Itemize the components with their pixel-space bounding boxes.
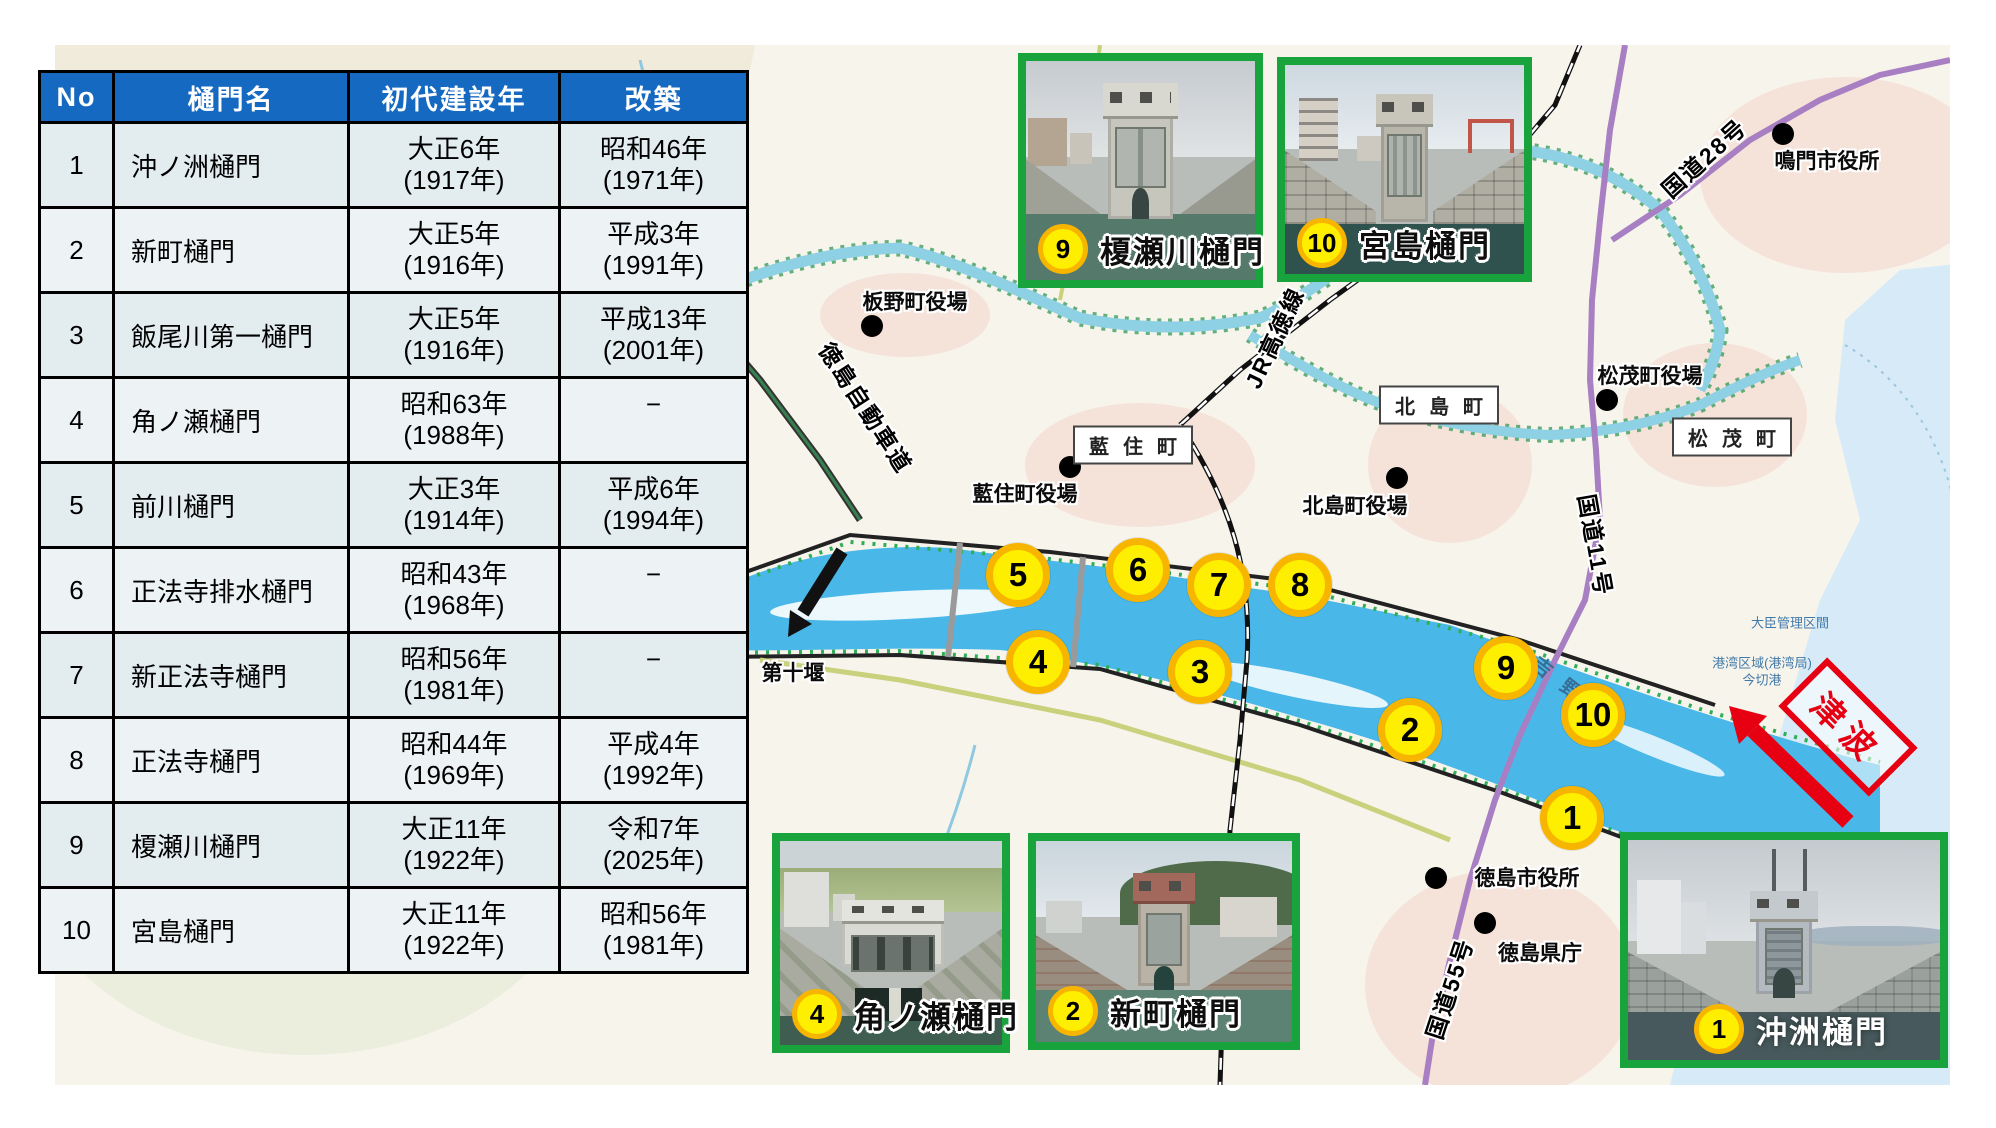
table-row: 4角ノ瀬樋門昭和63年(1988年)− [40,378,748,463]
rebuilt-era-line: − [561,644,746,675]
town-boxed-label: 北島町 [1379,386,1499,425]
photo-part-arch [1132,188,1148,219]
cell-rebuilt-year: 平成4年(1992年) [560,718,748,803]
rebuilt-era-line: 平成3年 [561,219,746,250]
map-marker-10: 10 [1561,683,1625,747]
town-boxed-label: 松茂町 [1672,418,1792,457]
rebuilt-year-line: (2001年) [561,335,746,366]
photo-part-gate [851,935,935,972]
inset-number-badge: 9 [1038,224,1088,274]
rebuilt-year-line [561,420,746,451]
inset-caption: 1沖洲樋門 [1694,1004,1888,1054]
map-marker-3: 3 [1168,640,1232,704]
photo-part-gate [1146,913,1182,965]
built-year-line: (1922年) [350,930,558,961]
cell-built-year: 昭和43年(1968年) [349,548,560,633]
photo-part-b2 [1070,133,1093,164]
photo-part-b1 [1046,901,1082,933]
cell-no: 2 [40,208,114,293]
rebuilt-era-line: 昭和56年 [561,899,746,930]
built-year-line: (1981年) [350,675,558,706]
built-year-line: (1922年) [350,845,558,876]
cell-built-year: 昭和63年(1988年) [349,378,560,463]
cell-no: 1 [40,123,114,208]
cell-built-year: 大正11年(1922年) [349,803,560,888]
cell-built-year: 大正3年(1914年) [349,463,560,548]
gate-table-body: 1沖ノ洲樋門大正6年(1917年)昭和46年(1971年)2新町樋門大正5年(1… [40,123,748,973]
inset-number-badge: 1 [1694,1004,1744,1054]
sea-small-label: 大臣管理区間 [1751,613,1829,632]
built-era-line: 昭和44年 [350,729,558,760]
place-dot [1386,467,1408,489]
map-marker-8: 8 [1268,553,1332,617]
place-label: 板野町役場 [863,286,968,316]
cell-built-year: 大正6年(1917年) [349,123,560,208]
cell-gate-name: 正法寺排水樋門 [114,548,349,633]
inset-caption-text: 角ノ瀬樋門 [854,992,1019,1037]
inset-number-badge: 4 [792,989,842,1039]
map-marker-9: 9 [1474,636,1538,700]
map-marker-2: 2 [1378,698,1442,762]
photo-part-b2 [1681,902,1706,955]
inset-caption-text: 沖洲樋門 [1756,1007,1888,1052]
inset-number-badge: 2 [1048,986,1098,1036]
col-header-gate-name: 樋門名 [114,72,349,123]
cell-rebuilt-year: 平成13年(2001年) [560,293,748,378]
cell-built-year: 昭和44年(1969年) [349,718,560,803]
place-label: 鳴門市役所 [1775,145,1880,175]
photo-part-gate [1387,134,1423,197]
place-dot [1474,912,1496,934]
sea-small-label: 今切港 [1742,670,1781,689]
map-marker-1: 1 [1540,786,1604,850]
built-era-line: 大正6年 [350,134,558,165]
table-header-row: No 樋門名 初代建設年 改築 [40,72,748,123]
inset-caption: 2新町樋門 [1048,986,1242,1036]
photo-part-b1 [784,872,828,927]
map-marker-4: 4 [1006,630,1070,694]
cell-gate-name: 沖ノ洲樋門 [114,123,349,208]
rebuilt-era-line: 平成4年 [561,729,746,760]
photo-part-b1 [1028,118,1067,166]
photo-inset-2: 2新町樋門 [1028,833,1300,1050]
rebuilt-era-line: 令和7年 [561,814,746,845]
cell-gate-name: 新正法寺樋門 [114,633,349,718]
place-dot [861,315,883,337]
table-row: 10宮島樋門大正11年(1922年)昭和56年(1981年) [40,888,748,973]
photo-part-gate [1115,127,1165,188]
place-label: 第十堰 [762,657,825,687]
inset-number-badge: 10 [1297,218,1347,268]
photo-part-cabin [1103,83,1179,119]
cell-gate-name: 榎瀬川樋門 [114,803,349,888]
rebuilt-year-line: (2025年) [561,845,746,876]
table-row: 7新正法寺樋門昭和56年(1981年)− [40,633,748,718]
built-year-line: (1988年) [350,420,558,451]
rebuilt-year-line: (1991年) [561,250,746,281]
place-label: 北島町役場 [1303,490,1408,520]
photo-inset-10: 10宮島樋門 [1277,57,1532,282]
rebuilt-year-line [561,590,746,621]
rebuilt-year-line: (1994年) [561,505,746,536]
built-year-line: (1916年) [350,335,558,366]
place-dot [1425,867,1447,889]
cell-rebuilt-year: 昭和46年(1971年) [560,123,748,208]
cell-no: 6 [40,548,114,633]
cell-built-year: 大正5年(1916年) [349,293,560,378]
cell-rebuilt-year: − [560,378,748,463]
photo-inset-4: 4角ノ瀬樋門 [772,833,1010,1053]
built-year-line: (1917年) [350,165,558,196]
photo-part-sky [780,841,1002,870]
cell-no: 9 [40,803,114,888]
inset-caption-text: 新町樋門 [1110,989,1242,1034]
cell-rebuilt-year: 昭和56年(1981年) [560,888,748,973]
cell-gate-name: 前川樋門 [114,463,349,548]
cell-rebuilt-year: 平成6年(1994年) [560,463,748,548]
cell-built-year: 大正11年(1922年) [349,888,560,973]
photo-part-b1 [1637,880,1681,955]
place-label: 徳島県庁 [1498,937,1582,967]
cell-built-year: 昭和56年(1981年) [349,633,560,718]
photo-part-b2 [1220,897,1276,937]
cell-gate-name: 飯尾川第一樋門 [114,293,349,378]
col-header-built-year: 初代建設年 [349,72,560,123]
cell-no: 4 [40,378,114,463]
table-row: 9榎瀬川樋門大正11年(1922年)令和7年(2025年) [40,803,748,888]
map-marker-5: 5 [986,543,1050,607]
map-marker-6: 6 [1106,538,1170,602]
inset-caption: 4角ノ瀬樋門 [792,989,1019,1039]
rebuilt-era-line: 平成6年 [561,474,746,505]
rebuilt-era-line: − [561,389,746,420]
cell-rebuilt-year: − [560,548,748,633]
built-era-line: 昭和43年 [350,559,558,590]
gate-table: No 樋門名 初代建設年 改築 1沖ノ洲樋門大正6年(1917年)昭和46年(1… [38,70,749,974]
built-era-line: 大正5年 [350,219,558,250]
rebuilt-era-line: 平成13年 [561,304,746,335]
rebuilt-year-line: (1992年) [561,760,746,791]
built-year-line: (1914年) [350,505,558,536]
rebuilt-era-line: − [561,559,746,590]
cell-rebuilt-year: 平成3年(1991年) [560,208,748,293]
inset-caption: 10宮島樋門 [1297,218,1491,268]
built-era-line: 大正11年 [350,814,558,845]
inset-caption-text: 榎瀬川樋門 [1100,227,1265,272]
cell-gate-name: 宮島樋門 [114,888,349,973]
place-label: 徳島市役所 [1475,862,1580,892]
table-row: 2新町樋門大正5年(1916年)平成3年(1991年) [40,208,748,293]
table-row: 3飯尾川第一樋門大正5年(1916年)平成13年(2001年) [40,293,748,378]
cell-gate-name: 新町樋門 [114,208,349,293]
place-label: 藍住町役場 [973,478,1078,508]
built-year-line: (1969年) [350,760,558,791]
map-marker-7: 7 [1187,553,1251,617]
cell-no: 5 [40,463,114,548]
cell-no: 7 [40,633,114,718]
cell-no: 10 [40,888,114,973]
cell-rebuilt-year: − [560,633,748,718]
town-boxed-label: 藍住町 [1073,426,1193,465]
built-era-line: 大正3年 [350,474,558,505]
built-era-line: 昭和63年 [350,389,558,420]
rebuilt-year-line: (1981年) [561,930,746,961]
cell-no: 3 [40,293,114,378]
place-dot [1772,123,1794,145]
inset-caption: 9榎瀬川樋門 [1038,224,1265,274]
built-year-line: (1916年) [350,250,558,281]
photo-part-cabin [1750,891,1819,923]
built-era-line: 大正5年 [350,304,558,335]
place-dot [1596,389,1618,411]
cell-gate-name: 角ノ瀬樋門 [114,378,349,463]
place-label: 松茂町役場 [1598,360,1703,390]
inset-caption-text: 宮島樋門 [1359,221,1491,266]
photo-part-hill [1800,926,1940,946]
cell-no: 8 [40,718,114,803]
photo-part-b3 [1468,119,1514,152]
table-row: 5前川樋門大正3年(1914年)平成6年(1994年) [40,463,748,548]
built-era-line: 大正11年 [350,899,558,930]
rebuilt-year-line [561,675,746,706]
cell-rebuilt-year: 令和7年(2025年) [560,803,748,888]
built-year-line: (1968年) [350,590,558,621]
cell-gate-name: 正法寺樋門 [114,718,349,803]
photo-part-cabin [842,900,944,923]
built-era-line: 昭和56年 [350,644,558,675]
photo-part-b1 [1299,98,1337,161]
table-row: 6正法寺排水樋門昭和43年(1968年)− [40,548,748,633]
photo-part-cabin [1133,873,1194,904]
col-header-no: No [40,72,114,123]
photo-inset-9: 9榎瀬川樋門 [1018,53,1263,288]
photo-part-cabin [1376,94,1433,126]
rebuilt-year-line: (1971年) [561,165,746,196]
table-row: 8正法寺樋門昭和44年(1969年)平成4年(1992年) [40,718,748,803]
photo-inset-1: 1沖洲樋門 [1620,832,1948,1068]
rebuilt-era-line: 昭和46年 [561,134,746,165]
col-header-rebuilt: 改築 [560,72,748,123]
cell-built-year: 大正5年(1916年) [349,208,560,293]
table-row: 1沖ノ洲樋門大正6年(1917年)昭和46年(1971年) [40,123,748,208]
photo-part-arch [1773,968,1795,999]
